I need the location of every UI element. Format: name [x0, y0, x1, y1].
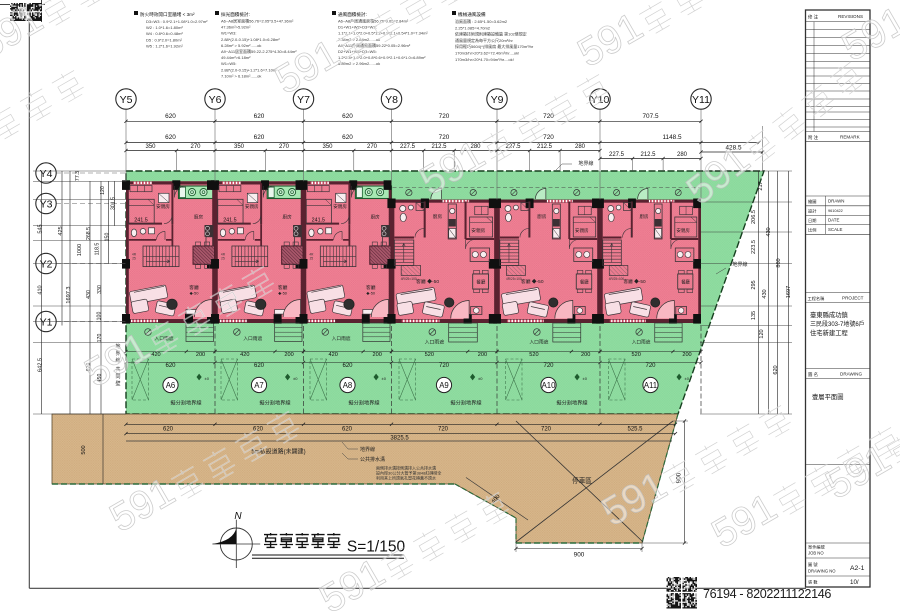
svg-text:420: 420: [240, 352, 249, 358]
svg-text:7.10m² > 6.18m²......ok: 7.10m² > 6.18m²......ok: [221, 73, 261, 78]
svg-text:W5 : 1.2*1.6=1.92m²: W5 : 1.2*1.6=1.92m²: [146, 43, 183, 48]
svg-text:A11: A11: [644, 381, 657, 390]
svg-text:620: 620: [165, 113, 176, 120]
svg-text:設計: 設計: [808, 208, 816, 215]
svg-text:DRAWN: DRAWN: [828, 199, 844, 204]
svg-text:200: 200: [478, 352, 487, 358]
svg-text:620: 620: [342, 113, 353, 120]
svg-text:比例: 比例: [808, 227, 816, 234]
svg-text:D3=W3 : 0.9*2.1+1.08*1.0=2.97m: D3=W3 : 0.9*2.1+1.08*1.0=2.97m²: [146, 19, 208, 24]
svg-text:A8: A8: [343, 381, 353, 390]
svg-text:270: 270: [279, 144, 290, 150]
svg-text:241.5: 241.5: [312, 217, 325, 223]
svg-text:280: 280: [575, 144, 586, 150]
svg-text:720: 720: [438, 427, 449, 433]
svg-text:720: 720: [543, 134, 554, 141]
svg-text:◆-50: ◆-50: [190, 290, 200, 295]
svg-text:2.88*(2.0-0.15)+1.08*1.0=6.28m: 2.88*(2.0-0.15)+1.08*1.0=6.28m²: [221, 37, 280, 42]
svg-text:430: 430: [86, 290, 92, 299]
svg-text:修 注: 修 注: [808, 14, 819, 21]
svg-text:900: 900: [574, 552, 585, 559]
svg-text:9610422: 9610422: [828, 209, 843, 213]
svg-text:720: 720: [439, 363, 450, 369]
svg-text:地界線: 地界線: [732, 261, 747, 268]
svg-text:49.44m²>6.18m²: 49.44m²>6.18m²: [221, 55, 251, 60]
svg-text:10/: 10/: [850, 579, 859, 586]
svg-text:廚房: 廚房: [433, 213, 443, 220]
svg-text:擬分割地界線: 擬分割地界線: [170, 399, 201, 407]
svg-text:擬分割地界線: 擬分割地界線: [450, 399, 481, 407]
svg-text:廚房: 廚房: [537, 213, 547, 220]
svg-text:77.3: 77.3: [75, 171, 81, 181]
svg-text:停車區: 停車區: [572, 476, 592, 485]
svg-text:520: 520: [425, 352, 434, 358]
svg-text:206.5: 206.5: [751, 210, 757, 224]
svg-text:1148.5: 1148.5: [662, 134, 682, 141]
svg-text:500: 500: [81, 445, 87, 454]
svg-text:壹層平面圖: 壹層平面圖: [812, 392, 843, 401]
svg-text:安親房: 安親房: [156, 203, 170, 210]
svg-text:W1=W3:: W1=W3:: [221, 31, 236, 36]
svg-text:Y5: Y5: [120, 94, 133, 106]
svg-text:A2-1: A2-1: [850, 565, 865, 572]
svg-text:76194 - 8202211122146: 76194 - 8202211122146: [703, 587, 831, 601]
svg-text:620: 620: [163, 427, 174, 433]
svg-text:繪圖: 繪圖: [808, 198, 816, 205]
svg-text:擬分割地界線: 擬分割地界線: [556, 399, 587, 407]
svg-text:100: 100: [97, 312, 103, 321]
svg-text:642.5: 642.5: [38, 358, 44, 372]
svg-text:D5 : 0.9*2.0=1.80m²: D5 : 0.9*2.0=1.80m²: [146, 37, 183, 42]
svg-text:客廳 ◆-50: 客廳 ◆-50: [521, 278, 544, 285]
svg-text:地界線: 地界線: [360, 446, 375, 453]
svg-text:223.5: 223.5: [751, 240, 757, 254]
svg-text:依建築技術規則建築設備篇 第102條規定: 依建築技術規則建築設備篇 第102條規定: [455, 31, 527, 37]
svg-text:通風量規定為每平方公尺20m³/hr: 通風量規定為每平方公尺20m³/hr: [455, 37, 513, 43]
svg-text:廚房: 廚房: [194, 213, 204, 220]
svg-text:Y11: Y11: [692, 94, 710, 106]
svg-text:DATE: DATE: [828, 218, 839, 223]
svg-text:200: 200: [373, 352, 382, 358]
svg-text:350: 350: [145, 144, 156, 150]
svg-text:住宅新建工程: 住宅新建工程: [810, 328, 848, 337]
svg-text:1697.3: 1697.3: [66, 286, 72, 303]
svg-text:安親房: 安親房: [245, 203, 259, 210]
svg-text:廚房: 廚房: [283, 213, 293, 220]
svg-text:入口雨遮: 入口雨遮: [632, 338, 651, 345]
svg-text:安親房: 安親房: [471, 227, 485, 234]
svg-text:W4 : 0.8*0.6=0.48m²: W4 : 0.8*0.6=0.48m²: [146, 31, 183, 36]
svg-text:◆-50: ◆-50: [278, 290, 288, 295]
svg-text:170: 170: [97, 334, 103, 343]
svg-text:1000: 1000: [77, 244, 83, 256]
svg-text:採光面積檢討:: 採光面積檢討:: [221, 11, 250, 18]
svg-text:客廳 ◆-50: 客廳 ◆-50: [623, 278, 645, 285]
svg-text:430: 430: [762, 289, 768, 298]
svg-text:241.5: 241.5: [134, 218, 148, 224]
svg-text:W1=W5:: W1=W5:: [221, 61, 236, 66]
svg-text:25: 25: [132, 256, 136, 260]
svg-text:25: 25: [221, 256, 225, 260]
svg-text:入口雨遮: 入口雨遮: [332, 335, 351, 342]
svg-text:SCALE: SCALE: [828, 227, 842, 232]
svg-text:REMARK: REMARK: [840, 135, 861, 140]
svg-text:170m3/hr>20*4.70=94m³/hr....ok: 170m3/hr>20*4.70=94m³/hr....ok!: [455, 57, 514, 62]
svg-text:W2 : 1.0*1.6=1.80m²: W2 : 1.0*1.6=1.80m²: [146, 25, 183, 30]
svg-text:±0: ±0: [205, 376, 210, 381]
svg-text:227.5: 227.5: [400, 144, 416, 150]
svg-text:客廳 ◆-50: 客廳 ◆-50: [416, 278, 439, 285]
svg-text:廚房: 廚房: [640, 213, 649, 220]
svg-text:707.5: 707.5: [643, 113, 659, 120]
svg-text:350: 350: [322, 144, 333, 150]
svg-text:200: 200: [196, 352, 205, 358]
svg-text:三民段303-7地號6戶: 三民段303-7地號6戶: [810, 320, 865, 328]
svg-text:620: 620: [773, 365, 779, 374]
svg-text:Y6: Y6: [209, 94, 222, 106]
svg-text:4R/25=100: 4R/25=100: [506, 277, 522, 281]
svg-text:520: 520: [529, 352, 538, 358]
svg-text:JOB NO: JOB NO: [808, 551, 824, 556]
svg-text:4R/25=100: 4R/25=100: [401, 277, 417, 281]
svg-text:3825.5: 3825.5: [390, 436, 409, 442]
svg-text:200: 200: [682, 352, 691, 358]
svg-text:270: 270: [367, 144, 378, 150]
svg-text:47.36m²>5.92m²: 47.36m²>5.92m²: [221, 25, 251, 30]
svg-text:170m3/hr>20*3.62=72.40m³/hr...: 170m3/hr>20*3.62=72.40m³/hr....ok!: [455, 51, 519, 56]
svg-text:地界線: 地界線: [578, 160, 593, 167]
svg-text:餐廳: 餐廳: [476, 279, 486, 286]
svg-text:720: 720: [439, 113, 450, 120]
svg-text:525.5: 525.5: [627, 427, 643, 433]
svg-text:6.28m² > 5.92m²......ok: 6.28m² > 5.92m²......ok: [221, 43, 261, 48]
svg-text:入口雨遮: 入口雨遮: [243, 335, 262, 342]
svg-text:620: 620: [165, 363, 176, 369]
svg-text:A9: A9: [439, 381, 449, 390]
svg-text:圖 號: 圖 號: [808, 561, 818, 568]
svg-text:安親房: 安親房: [333, 203, 347, 210]
svg-text:295: 295: [751, 280, 757, 289]
svg-text:720: 720: [439, 134, 450, 141]
svg-text:545: 545: [38, 224, 44, 233]
svg-text:212.5: 212.5: [537, 144, 553, 150]
svg-text:餐廳: 餐廳: [681, 278, 690, 285]
svg-text:350: 350: [234, 144, 245, 150]
svg-text:±0: ±0: [583, 376, 588, 381]
svg-text:公共排水溝: 公共排水溝: [360, 456, 385, 463]
svg-text:S=1/150: S=1/150: [347, 539, 406, 556]
svg-text:張 數: 張 數: [808, 579, 818, 586]
svg-text:860: 860: [776, 258, 782, 267]
svg-text:720: 720: [541, 427, 552, 433]
svg-text:217: 217: [758, 181, 764, 190]
svg-text:DRAWING NO: DRAWING NO: [808, 569, 836, 574]
svg-text:4R/25=100: 4R/25=100: [609, 277, 625, 281]
svg-text:212.5: 212.5: [640, 152, 656, 158]
svg-text:120: 120: [100, 186, 106, 195]
svg-text:620: 620: [342, 427, 353, 433]
svg-text:330: 330: [97, 285, 103, 294]
svg-text:420: 420: [329, 352, 338, 358]
svg-text:N: N: [234, 511, 242, 522]
svg-text:227.5: 227.5: [609, 152, 625, 158]
svg-text:案件編號: 案件編號: [808, 544, 826, 551]
svg-text:採用輕巧5604(*)排風扇 最大排風量170m³/hr: 採用輕巧5604(*)排風扇 最大排風量170m³/hr: [455, 43, 534, 49]
svg-text:135: 135: [751, 311, 757, 320]
svg-text:±0: ±0: [685, 376, 690, 381]
svg-text:150: 150: [105, 233, 111, 242]
svg-text:425: 425: [58, 226, 64, 235]
svg-text:±0: ±0: [382, 376, 387, 381]
svg-text:A9~A11戶周通風面積59.22*0.05=2.96m²: A9~A11戶周通風面積59.22*0.05=2.96m²: [338, 42, 411, 48]
svg-text:A6: A6: [166, 381, 176, 390]
svg-text:620: 620: [254, 134, 265, 141]
svg-text:±0: ±0: [293, 376, 298, 381]
svg-text:餐廳: 餐廳: [580, 278, 589, 285]
svg-text:270: 270: [190, 144, 201, 150]
svg-text:268.5: 268.5: [86, 227, 92, 240]
svg-text:620: 620: [342, 134, 353, 141]
svg-text:浴廁面積 : 2.65*1.50=3.62m2: 浴廁面積 : 2.65*1.50=3.62m2: [455, 18, 508, 24]
svg-text:720: 720: [543, 363, 554, 369]
svg-text:通風面積檢討:: 通風面積檢討:: [338, 11, 367, 18]
svg-text:安親房: 安親房: [575, 227, 589, 234]
svg-text:200: 200: [581, 352, 590, 358]
svg-text:臺東縣成功鎮: 臺東縣成功鎮: [810, 310, 848, 319]
svg-text:520: 520: [632, 352, 641, 358]
svg-text:430: 430: [766, 227, 772, 236]
svg-text:入口雨遮: 入口雨遮: [425, 339, 445, 346]
svg-text:720: 720: [645, 363, 656, 369]
svg-text:118.5: 118.5: [95, 243, 101, 256]
svg-text:620: 620: [165, 134, 176, 141]
svg-text:圖 名: 圖 名: [808, 371, 818, 378]
svg-text:301.5: 301.5: [111, 197, 117, 210]
svg-text:620: 620: [342, 363, 353, 369]
svg-text:擬分割地界線: 擬分割地界線: [348, 399, 379, 407]
svg-text:241.5: 241.5: [223, 217, 236, 223]
svg-text:620: 620: [254, 363, 265, 369]
svg-text:280: 280: [677, 152, 688, 158]
svg-text:DRAWING: DRAWING: [840, 372, 862, 377]
svg-text:620: 620: [254, 113, 265, 120]
svg-text:120: 120: [759, 329, 765, 338]
svg-text:擬分割地界線: 擬分割地界線: [259, 399, 290, 407]
svg-text:機械通風設備: 機械通風設備: [458, 11, 486, 18]
svg-text:PROJECT: PROJECT: [842, 296, 864, 301]
svg-text:Y8: Y8: [385, 94, 398, 106]
svg-text:25: 25: [310, 256, 314, 260]
svg-text:±0: ±0: [478, 376, 483, 381]
svg-text:附 注: 附 注: [808, 134, 819, 141]
svg-text:入口雨遮: 入口雨遮: [529, 338, 548, 345]
svg-text:A6~A8居室面積56.76=2.05*3.5+47.36m: A6~A8居室面積56.76=2.05*3.5+47.36m²: [221, 18, 294, 24]
svg-text:Y9: Y9: [491, 94, 504, 106]
svg-text:410: 410: [38, 285, 44, 294]
svg-text:1697: 1697: [786, 286, 792, 298]
svg-text:廚房: 廚房: [371, 213, 381, 220]
svg-text:安親房: 安親房: [676, 227, 690, 234]
svg-text:工程名稱: 工程名稱: [808, 295, 826, 302]
svg-text:200: 200: [284, 352, 293, 358]
svg-text:◆-50: ◆-50: [366, 290, 376, 295]
svg-text:利用其上所透氣孔塑花磚蓋不透水: 利用其上所透氣孔塑花磚蓋不透水: [376, 475, 436, 481]
svg-text:A7: A7: [254, 381, 264, 390]
svg-text:防火時效開口室牆堵 < 3m²: 防火時效開口室牆堵 < 3m²: [140, 11, 195, 18]
svg-text:2.25*1.085=4.70m2: 2.25*1.085=4.70m2: [455, 25, 491, 30]
svg-text:A10: A10: [542, 381, 557, 390]
